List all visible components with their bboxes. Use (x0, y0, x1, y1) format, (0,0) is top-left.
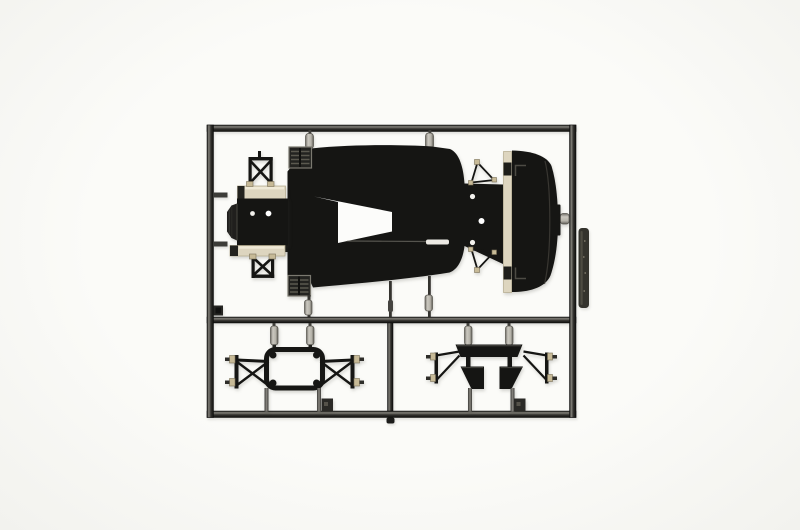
tag-sheen (581, 231, 583, 305)
cockpit-section-part: front cockpit / bulkhead section part fr… (227, 151, 288, 278)
divider-runner (388, 323, 394, 411)
sprue-gate (561, 214, 570, 225)
truss-cap (230, 379, 236, 387)
truss-stub (360, 358, 365, 362)
cockpit-hole (250, 211, 255, 216)
tag-speck (583, 256, 585, 258)
sprue-gate (465, 326, 473, 345)
chassis-floor-part: chassis floor pan part with cutout louve… (282, 145, 503, 296)
connector-nub (508, 357, 513, 367)
strip-dark-end (230, 246, 238, 257)
cowl-edge-tab (504, 163, 512, 176)
rear-cowl-part: rounded rear cowl panel part (504, 151, 571, 293)
ring-joint (270, 352, 277, 359)
truss-member (524, 352, 548, 356)
sprue-gate (506, 326, 514, 345)
mount-plate-left (461, 367, 485, 390)
ring-joint (313, 352, 320, 359)
ring-joint (313, 380, 320, 387)
sprue-gate (306, 134, 314, 149)
panel-seam (347, 241, 426, 242)
photo-canvas: rectangular sprue runner frame sprue gat… (0, 0, 800, 530)
truss-stub (225, 358, 230, 362)
ring-joint (270, 380, 277, 387)
cowl-panel (512, 151, 558, 293)
cockpit-top-strip-highlight (245, 187, 284, 190)
truss-member (524, 356, 548, 381)
rail-stub-lower (213, 242, 228, 247)
sprue-gate (426, 133, 434, 149)
sprue-gate (271, 326, 279, 345)
truss-cap (431, 375, 436, 382)
right-rail (570, 125, 577, 418)
sprue-gate (307, 326, 315, 345)
left-rail (207, 125, 214, 418)
truss-cap (548, 375, 553, 382)
gate-bulge (388, 300, 393, 312)
truss-cap (431, 353, 436, 360)
mount-plate-right (500, 367, 524, 390)
truss-cap (354, 356, 360, 364)
truss-stub (360, 381, 365, 385)
tag-body (579, 228, 590, 308)
gate-leg (265, 388, 269, 412)
front-upper-wishbone: front upper suspension wishbone (247, 151, 275, 187)
bulkhead-hole (470, 240, 475, 245)
sprue-gate (425, 295, 433, 311)
runner-nub (387, 418, 395, 424)
truss-cap (548, 353, 553, 360)
bulkhead-hole (470, 194, 475, 199)
top-rail (207, 125, 576, 132)
tag-speck (584, 240, 586, 242)
sprue-gate (305, 300, 313, 315)
subframe-right-part: rear subframe part with mounting plates (426, 323, 557, 412)
truss-stub (553, 377, 558, 381)
tag-speck (584, 290, 586, 292)
mold-tab-left-rail-inner (216, 308, 222, 314)
bottom-rail (207, 411, 576, 418)
gate-block (552, 205, 561, 236)
truss-member (436, 352, 460, 356)
rear-upper-wishbone: rear upper suspension wishbone (469, 160, 497, 186)
radiator-grille-bottom: louvered vent insert (bottom) (288, 276, 311, 297)
cockpit-hole (266, 211, 272, 217)
crossmember-bar (456, 345, 523, 358)
tag-speck (585, 272, 587, 274)
rear-lower-wishbone: rear lower suspension wishbone (469, 247, 497, 273)
truss-stub (225, 381, 230, 385)
chassis-silhouette (282, 145, 503, 287)
truss-member (237, 360, 270, 362)
truss-cap (354, 379, 360, 387)
mold-tab-mark (517, 402, 521, 406)
truss-member (436, 356, 460, 381)
truss-stub (426, 377, 431, 381)
gate-leg (468, 388, 472, 412)
subframe-left-part: tubular subframe part (hexagonal ring) (225, 323, 364, 412)
cockpit-box (237, 199, 288, 246)
front-lower-wishbone: front lower suspension wishbone (250, 254, 276, 278)
cockpit-bottom-strip-highlight (239, 246, 284, 248)
truss-member (320, 360, 353, 362)
radiator-grille-top: louvered vent insert (top) (289, 147, 312, 168)
gate-rod (389, 281, 392, 318)
bulkhead-hole (479, 218, 485, 224)
gate-leg (511, 388, 515, 412)
truss-stub (553, 355, 558, 359)
truss-cap (230, 356, 236, 364)
part-number-tag: embossed part-number tag (579, 228, 590, 308)
seam-slot (426, 240, 449, 245)
gate-leg (317, 388, 321, 412)
connector-nub (466, 357, 471, 367)
rail-stub-upper (213, 193, 228, 198)
truss-stub (426, 355, 431, 359)
mold-tab-mark (324, 402, 328, 406)
cowl-edge-tab (504, 267, 512, 280)
strip-dark-end (238, 186, 245, 199)
